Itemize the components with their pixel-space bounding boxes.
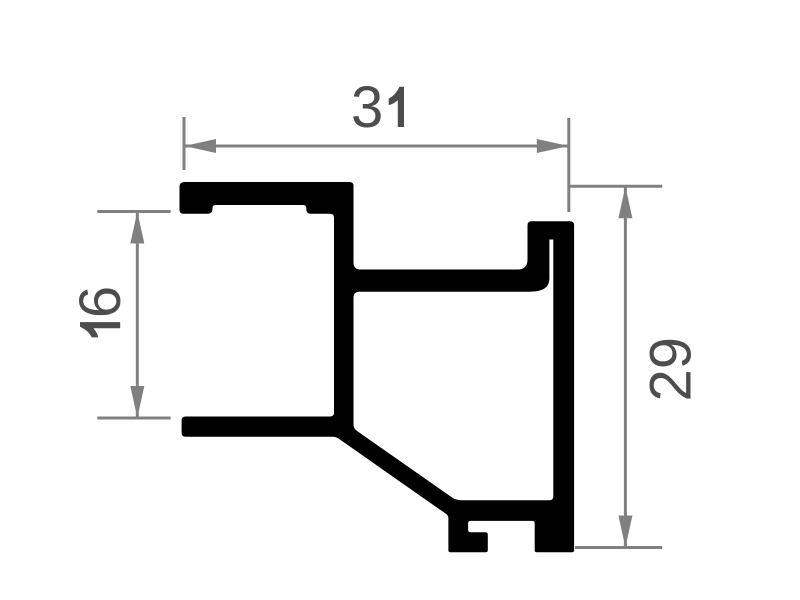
- svg-text:3: 3: [351, 75, 383, 140]
- svg-text:6: 6: [68, 286, 133, 318]
- svg-text:29: 29: [639, 337, 704, 402]
